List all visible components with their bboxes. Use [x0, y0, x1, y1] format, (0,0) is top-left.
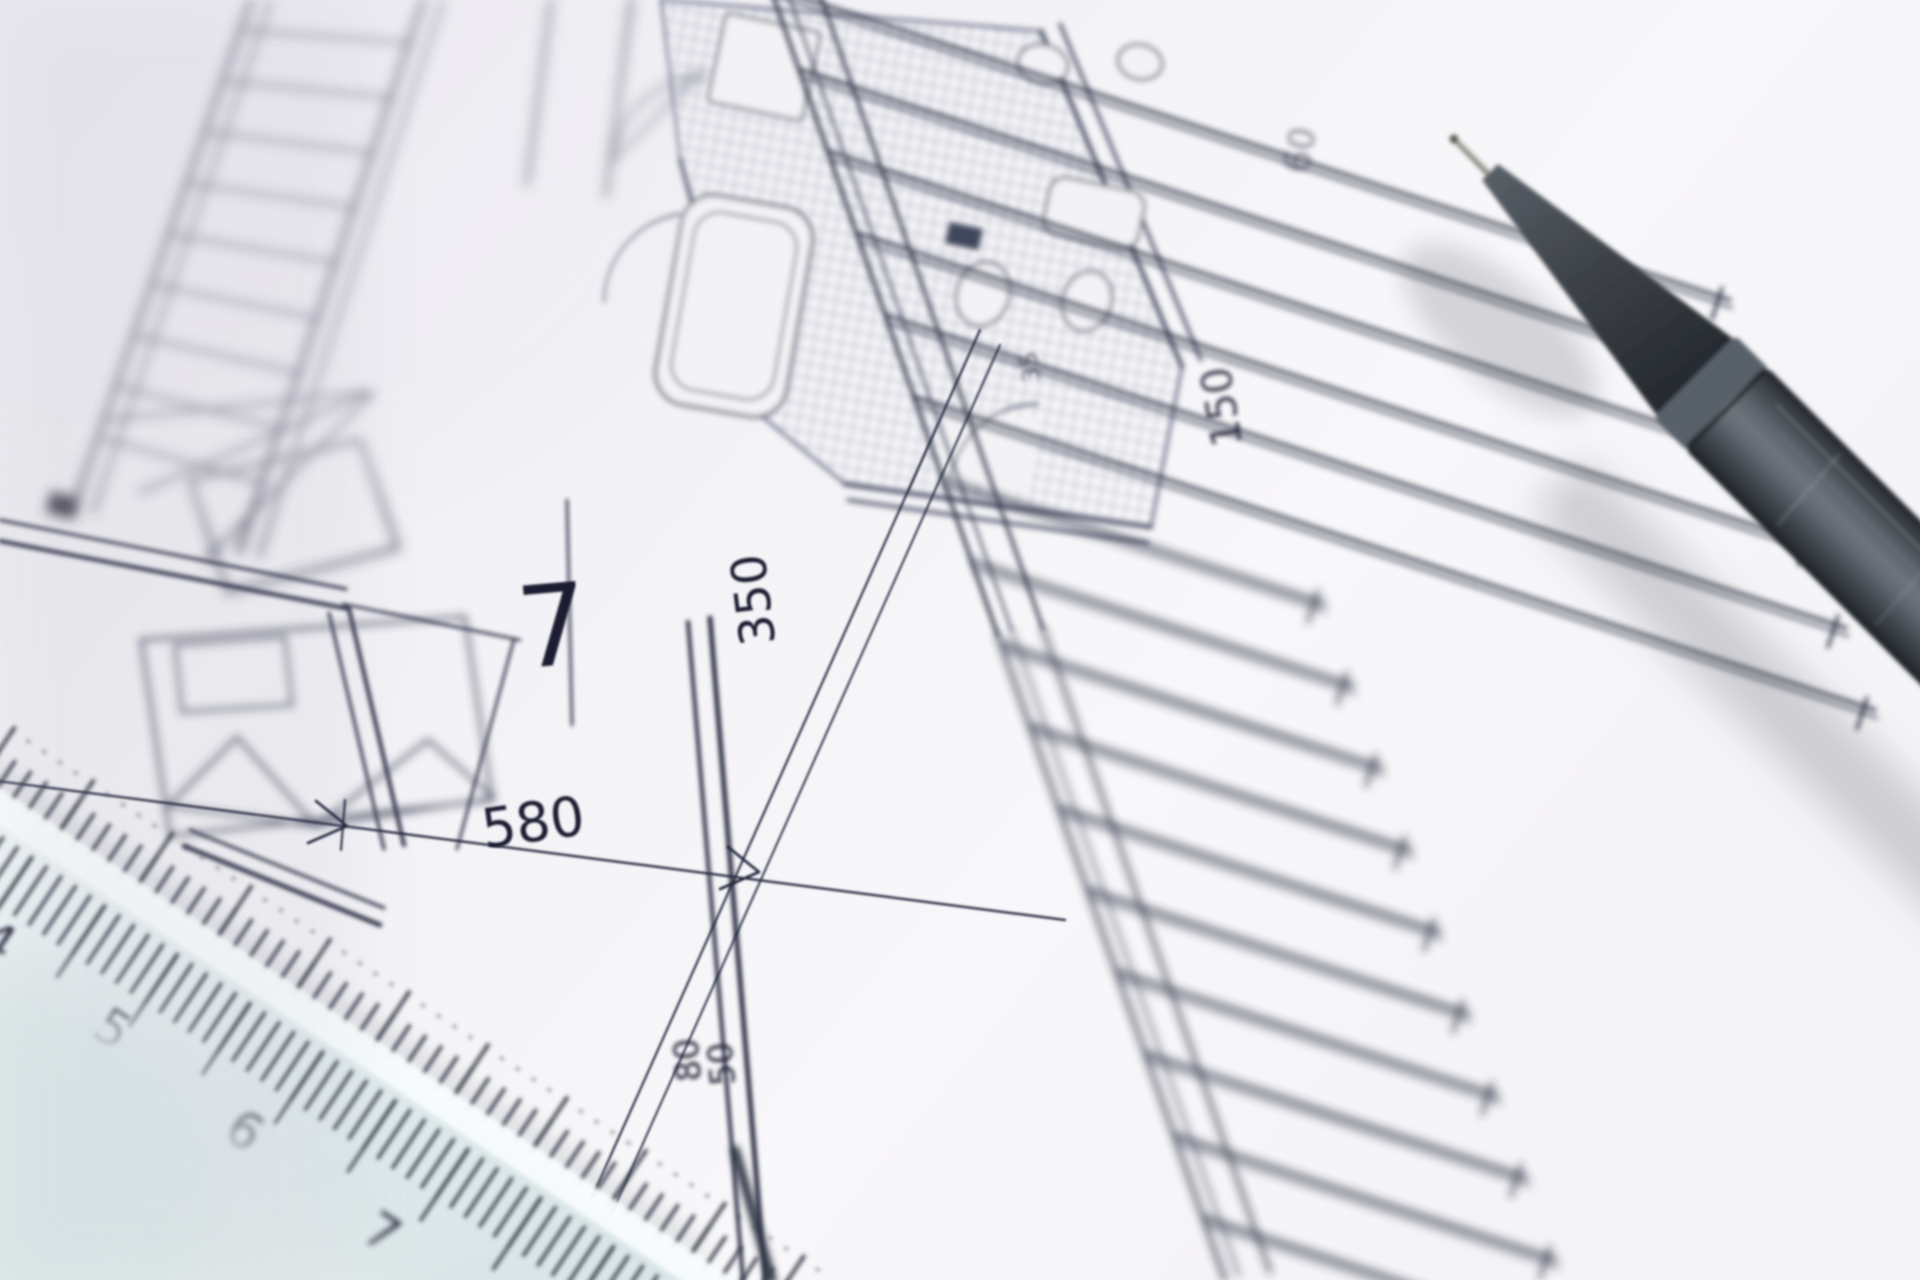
vignette: [0, 0, 360, 1280]
dimension-label-50: 50: [700, 1041, 744, 1088]
pen-needle-tip: [1450, 135, 1459, 144]
scene-canvas: 7 580 350 150 80 50 60 35: [0, 0, 1920, 1280]
shower-tray: [708, 13, 821, 121]
room-number: 7: [512, 559, 594, 695]
dimension-label-35: 35: [1014, 350, 1046, 385]
dimension-label-350: 350: [721, 551, 788, 649]
dimension-label-60: 60: [1276, 124, 1324, 176]
photo-scene: 7 580 350 150 80 50 60 35: [0, 0, 1920, 1280]
